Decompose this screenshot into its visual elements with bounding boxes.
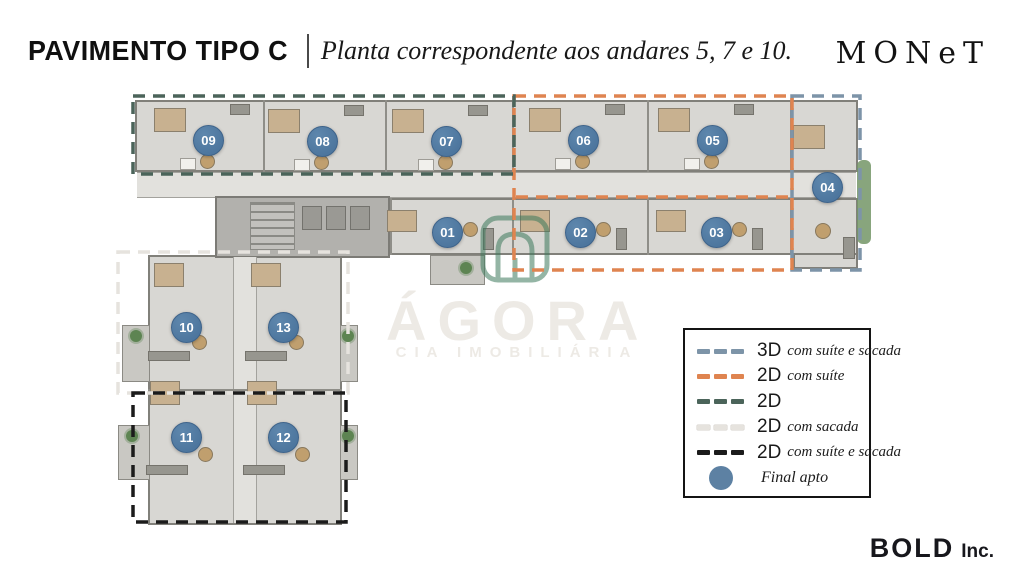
furniture — [418, 159, 434, 171]
title-separator — [307, 34, 309, 68]
wall-divider — [385, 100, 387, 172]
legend-dash — [697, 399, 710, 404]
furniture — [616, 228, 627, 250]
monet-logo: MONeT — [836, 36, 990, 71]
bold-logo: BOLD Inc. — [870, 533, 994, 564]
legend-type-label: 2D — [757, 365, 781, 387]
furniture — [392, 109, 424, 133]
furniture — [294, 159, 310, 171]
hedge — [857, 160, 871, 244]
legend-dash — [731, 450, 744, 455]
furniture — [243, 465, 285, 475]
furniture — [154, 108, 186, 132]
furniture — [247, 381, 277, 405]
furniture — [268, 109, 300, 133]
elevator-2 — [326, 206, 346, 230]
wall-divider — [790, 198, 792, 255]
wall-divider — [512, 100, 514, 172]
wall-divider — [647, 100, 649, 172]
furniture — [656, 210, 686, 232]
unit-badge-01: 01 — [432, 217, 463, 248]
legend-dash — [731, 374, 744, 379]
legend-dash — [731, 349, 744, 354]
elevator-1 — [302, 206, 322, 230]
furniture — [387, 210, 417, 232]
wall-divider — [512, 198, 514, 255]
page-subtitle: Planta correspondente aos andares 5, 7 e… — [321, 36, 792, 66]
unit-badge-05: 05 — [697, 125, 728, 156]
legend-item-2D-com-sacada: 2Dcom sacada — [697, 415, 859, 439]
legend-dash — [714, 399, 727, 404]
wall-divider — [790, 100, 792, 172]
legend-dash — [731, 399, 744, 404]
unit-badge-02: 02 — [565, 217, 596, 248]
legend-type-label: 2D — [757, 416, 781, 438]
legend-dash — [697, 450, 710, 455]
furniture — [555, 158, 571, 170]
floor-plan-sheet: PAVIMENTO TIPO C Planta correspondente a… — [0, 0, 1024, 576]
furniture — [154, 263, 184, 287]
furniture — [438, 155, 453, 170]
legend-item-final-apto: Final apto — [697, 466, 859, 490]
unit01-balcony — [430, 255, 485, 285]
legend-item-2D-com-suíte-e-sacada: 2Dcom suíte e sacada — [697, 441, 859, 465]
legend-desc-label: com suíte — [787, 368, 844, 385]
furniture — [230, 104, 250, 115]
unit-badge-08: 08 — [307, 126, 338, 157]
furniture — [752, 228, 763, 250]
wall-divider — [647, 198, 649, 255]
furniture — [520, 210, 550, 232]
furniture — [146, 465, 188, 475]
legend-item-2D-com-suíte: 2Dcom suíte — [697, 364, 859, 388]
legend-dash — [714, 349, 727, 354]
furniture — [468, 105, 488, 116]
legend-dash — [697, 349, 710, 354]
furniture — [251, 263, 281, 287]
furniture — [596, 222, 611, 237]
legend-dash — [697, 425, 710, 430]
legend-item-3D-com-suíte-e-sacada: 3Dcom suíte e sacada — [697, 339, 859, 363]
header: PAVIMENTO TIPO C Planta correspondente a… — [28, 34, 792, 68]
unit-badge-07: 07 — [431, 126, 462, 157]
dash-swatch — [697, 450, 751, 455]
dash-swatch — [697, 349, 751, 354]
unit-badge-11: 11 — [171, 422, 202, 453]
plant — [460, 262, 472, 274]
plant — [130, 330, 142, 342]
furniture — [575, 154, 590, 169]
legend-dash — [714, 450, 727, 455]
furniture — [815, 223, 831, 239]
page-title: PAVIMENTO TIPO C — [28, 35, 288, 67]
unit-badge-04: 04 — [812, 172, 843, 203]
furniture — [529, 108, 561, 132]
bold-logo-suffix: Inc. — [961, 541, 994, 563]
unit-badge-13: 13 — [268, 312, 299, 343]
dash-swatch — [697, 399, 751, 404]
legend-desc-label: com suíte e sacada — [787, 343, 901, 360]
plant — [126, 430, 138, 442]
furniture — [704, 154, 719, 169]
dash-swatch — [697, 374, 751, 379]
main-corridor — [137, 172, 856, 198]
furniture — [198, 447, 213, 462]
stairs — [250, 202, 295, 250]
furniture — [483, 228, 494, 250]
bold-logo-text: BOLD — [870, 533, 955, 564]
furniture — [605, 104, 625, 115]
plant — [342, 330, 354, 342]
elevator-3 — [350, 206, 370, 230]
unit-badge-06: 06 — [568, 125, 599, 156]
plant — [342, 430, 354, 442]
legend-item-2D-final: 2D — [697, 390, 859, 414]
unit-badge-10: 10 — [171, 312, 202, 343]
furniture — [295, 447, 310, 462]
unit-badge-03: 03 — [701, 217, 732, 248]
furniture — [732, 222, 747, 237]
wall-divider — [263, 100, 265, 172]
legend-type-label: 2D — [757, 442, 781, 464]
unit-badge-09: 09 — [193, 125, 224, 156]
furniture — [344, 105, 364, 116]
dash-swatch — [697, 425, 751, 430]
furniture — [180, 158, 196, 170]
legend-desc-label: Final apto — [761, 469, 828, 487]
furniture — [684, 158, 700, 170]
furniture — [734, 104, 754, 115]
furniture — [150, 381, 180, 405]
furniture — [200, 154, 215, 169]
furniture — [843, 237, 855, 259]
legend-dash — [714, 374, 727, 379]
legend: 3Dcom suíte e sacada2Dcom suíte2D2Dcom s… — [683, 328, 871, 498]
agora-watermark-subtext: CIA IMOBILIÁRIA — [386, 344, 648, 361]
furniture — [148, 351, 190, 361]
agora-watermark-text: ÁGORA — [386, 288, 648, 353]
unit-badge-12: 12 — [268, 422, 299, 453]
legend-dash — [697, 374, 710, 379]
furniture — [245, 351, 287, 361]
legend-desc-label: com suíte e sacada — [787, 444, 901, 461]
furniture — [793, 125, 825, 149]
legend-type-label: 2D — [757, 391, 781, 413]
final-apto-swatch — [697, 466, 751, 490]
furniture — [658, 108, 690, 132]
legend-dash — [714, 425, 727, 430]
furniture — [314, 155, 329, 170]
furniture — [463, 222, 478, 237]
legend-desc-label: com sacada — [787, 419, 858, 436]
legend-type-label: 3D — [757, 340, 781, 362]
final-apto-circle — [709, 466, 733, 490]
legend-dash — [731, 425, 744, 430]
